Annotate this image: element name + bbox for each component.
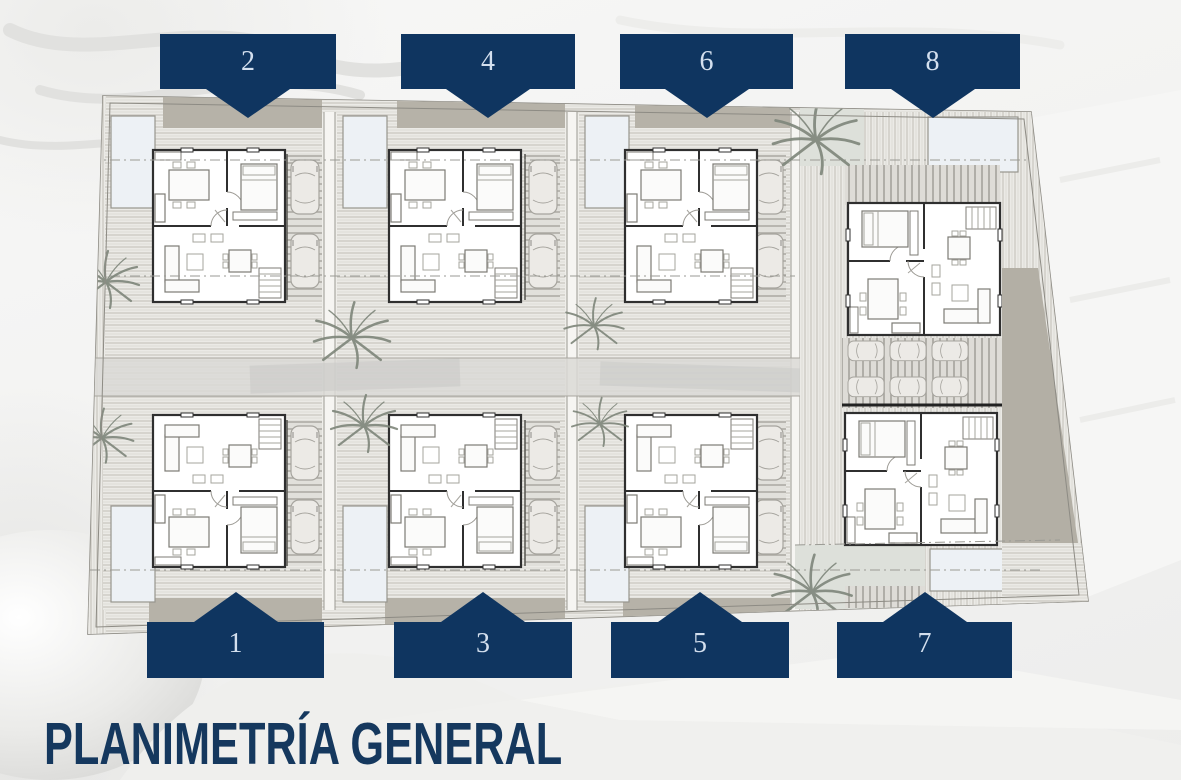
car-icon [291,160,319,214]
unit-6-plot [579,96,790,358]
car-icon [291,426,319,480]
unit-number: 2 [241,48,255,76]
patio-sage [800,96,864,166]
villa-floorplan [625,413,757,569]
unit-marker-4[interactable]: 4 [401,34,575,89]
villa-floorplan [625,148,757,304]
unit-number: 7 [918,630,932,658]
unit-marker-7[interactable]: 7 [837,622,1012,678]
unit-4-plot [337,96,565,358]
pool [111,506,155,602]
villa-floorplan [153,148,285,304]
unit-number: 1 [229,630,243,658]
car-icon [932,341,968,361]
car-icon [890,341,926,361]
car-icon [755,426,783,480]
unit-number: 6 [700,48,714,76]
car-icon [529,426,557,480]
car-icon [848,377,884,397]
unit-marker-3[interactable]: 3 [394,622,572,678]
car-icon [755,160,783,214]
unit-number: 3 [476,630,490,658]
unit-marker-6[interactable]: 6 [620,34,793,89]
car-icon [755,500,783,554]
planimetry-page: 2 4 6 8 1 3 5 7 PLANIMETRÍA GENERAL [0,0,1181,780]
car-icon [529,500,557,554]
villa-floorplan [389,148,521,304]
villa-floorplan [843,413,999,545]
villa-floorplan [846,203,1002,335]
page-title: PLANIMETRÍA GENERAL [44,710,562,779]
unit-marker-1[interactable]: 1 [147,622,324,678]
pool [343,116,387,208]
pool [928,117,1018,172]
pool [111,116,155,208]
car-icon [755,234,783,288]
car-icon [529,234,557,288]
unit-number: 5 [693,630,707,658]
unit-number: 8 [926,48,940,76]
unit-2-plot [105,96,322,358]
unit-marker-8[interactable]: 8 [845,34,1020,89]
pool [585,116,629,208]
unit-number: 4 [481,48,495,76]
car-icon [529,160,557,214]
pool [585,506,629,602]
villa-floorplan [153,413,285,569]
villa-floorplan [389,413,521,569]
unit-marker-5[interactable]: 5 [611,622,789,678]
car-icon [848,341,884,361]
site-area [71,96,1100,640]
car-icon [291,500,319,554]
car-icon [291,234,319,288]
car-icon [932,377,968,397]
pool [343,506,387,602]
car-icon [890,377,926,397]
unit-marker-2[interactable]: 2 [160,34,336,89]
